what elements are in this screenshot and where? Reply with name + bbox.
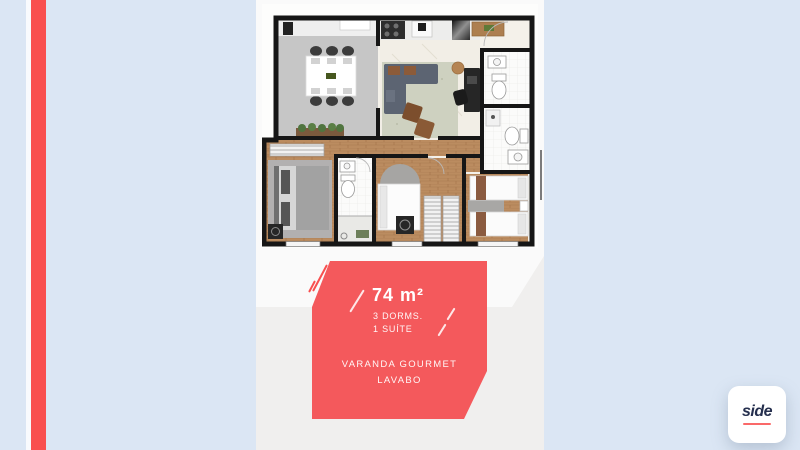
slide: 74 m² 3 DORMS. 1 SUÍTE VARANDA GOURMET L…: [0, 0, 800, 450]
unit-suite-label: 1 SUÍTE: [373, 324, 413, 334]
side-tick-line: [540, 150, 542, 200]
unit-feature-lavabo: LAVABO: [312, 375, 487, 386]
white-slash-decoration: [446, 308, 455, 321]
unit-feature-varanda: VARANDA GOURMET: [312, 359, 487, 370]
white-slash-decoration: [349, 289, 364, 312]
floor-plan-image: [262, 4, 538, 248]
unit-info-badge: 74 m² 3 DORMS. 1 SUÍTE VARANDA GOURMET L…: [312, 261, 487, 419]
content-panel: 74 m² 3 DORMS. 1 SUÍTE VARANDA GOURMET L…: [256, 0, 544, 450]
white-slash-decoration: [437, 324, 446, 337]
unit-dorms-label: 3 DORMS.: [373, 311, 423, 321]
brand-logo-text: side: [742, 404, 772, 420]
unit-area-label: 74 m²: [372, 285, 424, 306]
brand-logo-tagline: [743, 423, 771, 425]
brand-logo: side: [728, 386, 786, 443]
left-accent-stripe: [31, 0, 46, 450]
